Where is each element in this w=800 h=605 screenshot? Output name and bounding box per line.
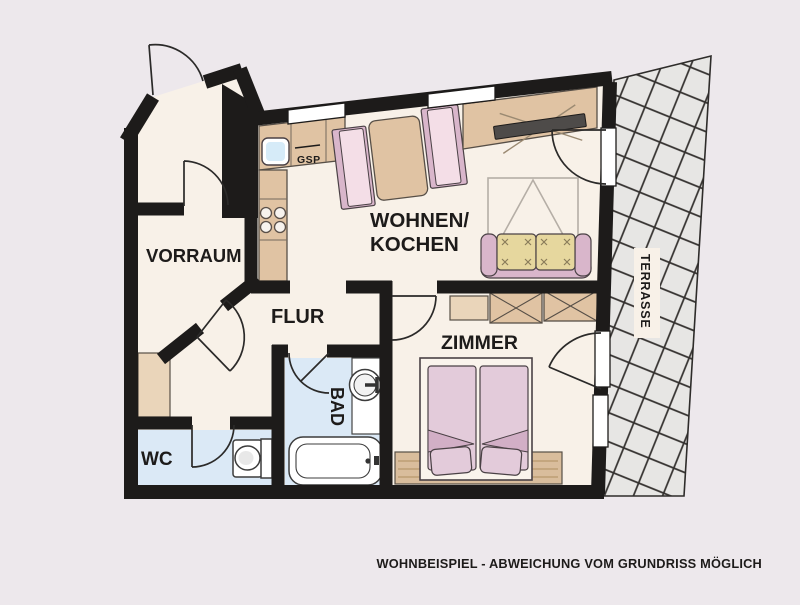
wc-label: WC <box>141 449 173 470</box>
window-zimmer <box>593 395 608 447</box>
wohnen-kochen-label-line1: WOHNEN/ <box>370 209 469 232</box>
sofa <box>481 234 591 278</box>
floorplan-canvas: GSP <box>0 0 800 600</box>
flur-label: FLUR <box>271 306 325 328</box>
wohnen-kochen-label-line2: KOCHEN <box>370 233 459 256</box>
pillow-right <box>480 446 522 475</box>
dishwasher-label: GSP <box>297 154 321 166</box>
wardrobe-shelf <box>450 296 488 320</box>
terrasse-label: TERRASSE <box>638 254 652 328</box>
zimmer-wardrobe <box>450 291 597 323</box>
tub-faucet <box>374 456 379 465</box>
toilet <box>233 439 272 478</box>
disclaimer-caption: WOHNBEISPIEL - ABWEICHUNG VOM GRUNDRISS … <box>377 556 763 571</box>
bad-label: BAD <box>327 387 347 426</box>
daybed <box>368 115 428 201</box>
vorraum-label: VORRAUM <box>146 245 242 266</box>
terrace-door-gap-living <box>601 128 616 186</box>
zimmer-label: ZIMMER <box>441 332 518 354</box>
pillow-left <box>430 446 472 475</box>
bath-sink <box>350 358 381 434</box>
terrace-door-gap-zimmer <box>595 331 610 387</box>
bathtub <box>289 437 382 485</box>
